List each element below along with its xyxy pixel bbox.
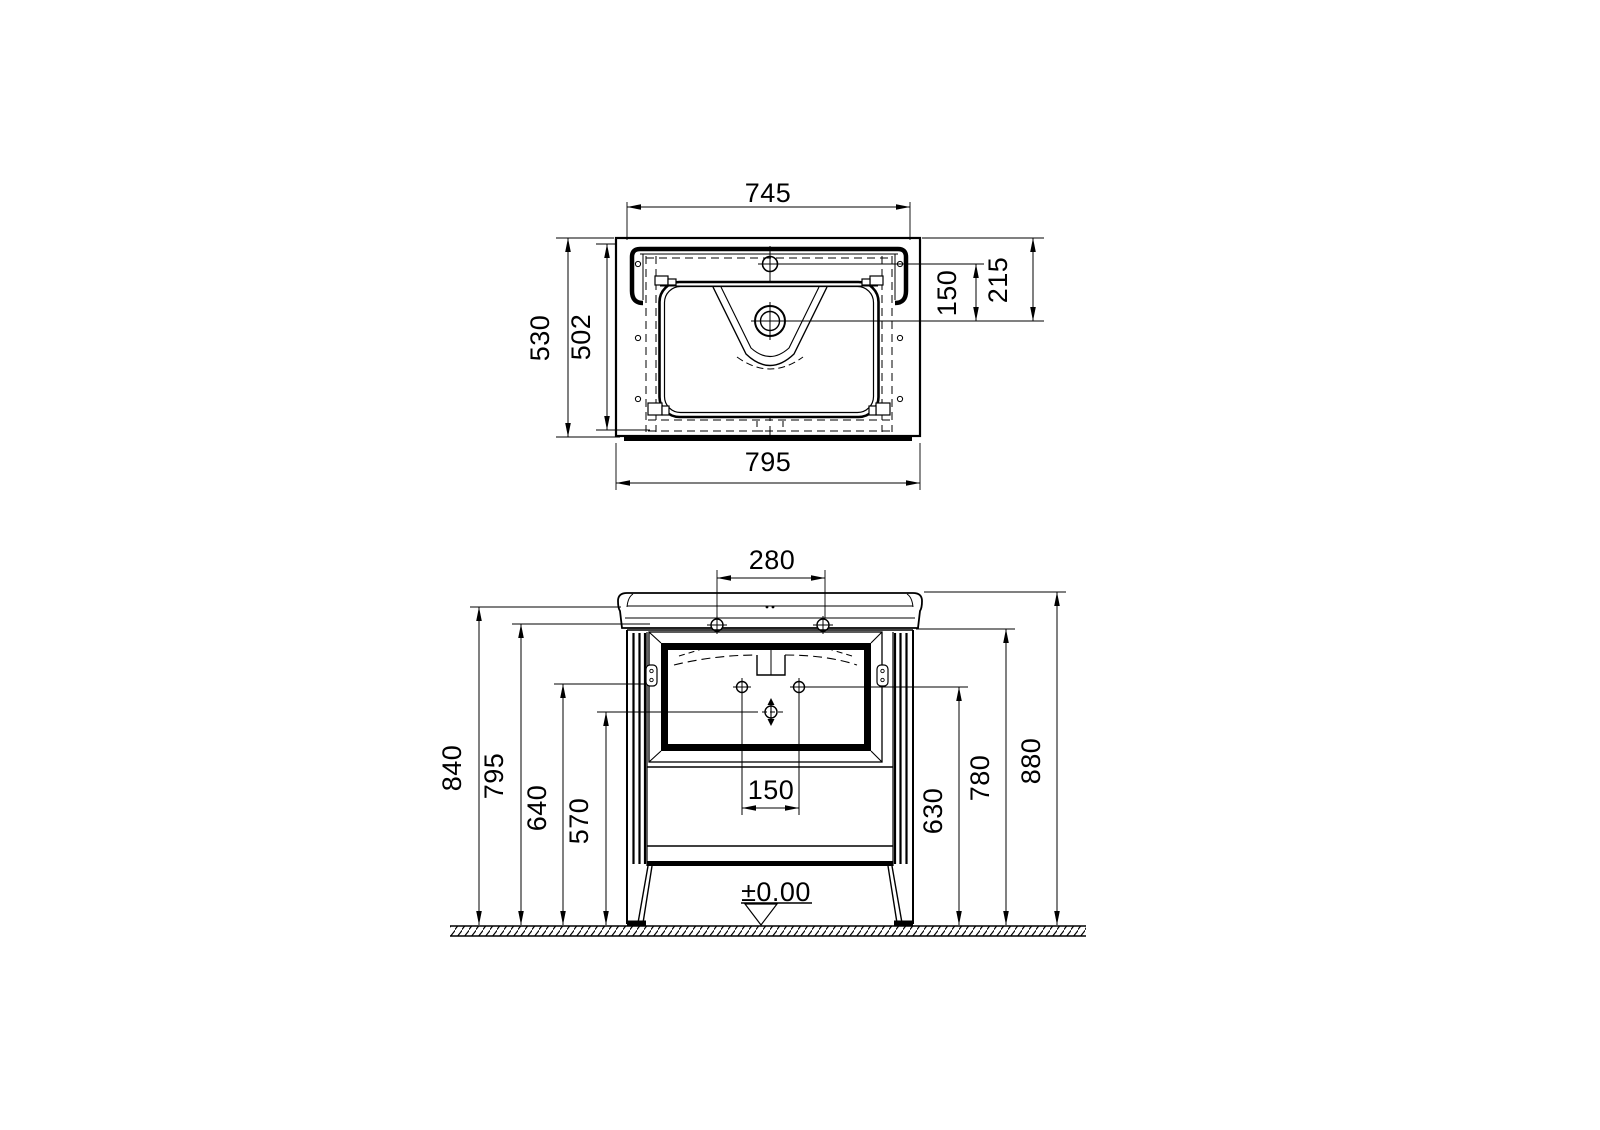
floor-level-marker: ±0.00 [741,877,812,925]
faucet-mount-holes [707,616,833,634]
dim-faucet-holes-span-label: 280 [749,545,796,575]
drain-center-marker [762,698,784,726]
dim-hole-height-label: 630 [918,788,948,835]
drawer-front-frame [649,632,882,762]
dim-edge-to-drain-label: 215 [983,257,1013,304]
dim-total-width-label: 795 [745,447,792,477]
front-view: ±0.00 280 150 840 795 640 [437,545,1086,936]
dim-cabinet-top-height-label: 795 [479,753,509,800]
dim-holes-line-height-label: 780 [965,755,995,802]
dim-basin-width-label: 745 [745,178,792,208]
technical-drawing-canvas: 745 795 530 502 150 215 [0,0,1600,1130]
basin-bowl [648,276,890,417]
technical-drawing-page: 745 795 530 502 150 215 [0,0,1600,1130]
dim-drain-height-label: 570 [564,798,594,845]
drain-position-holes [733,678,808,696]
faucet-hole [758,252,782,276]
top-view: 745 795 530 502 150 215 [525,178,1044,490]
ground-line [450,926,1086,936]
dim-drain-spacing-label: 150 [748,775,795,805]
dim-bracket-height-label: 640 [522,785,552,832]
sink-profile [618,593,922,634]
dim-total-height-label: 880 [1016,738,1046,785]
front-view-dimensions: 280 150 840 795 640 570 630 [437,545,1066,925]
dim-faucet-to-drain-label: 150 [932,270,962,317]
dim-inner-depth-label: 502 [566,314,596,361]
dim-total-depth-label: 530 [525,315,555,362]
dim-sink-back-height-label: 840 [437,745,467,792]
